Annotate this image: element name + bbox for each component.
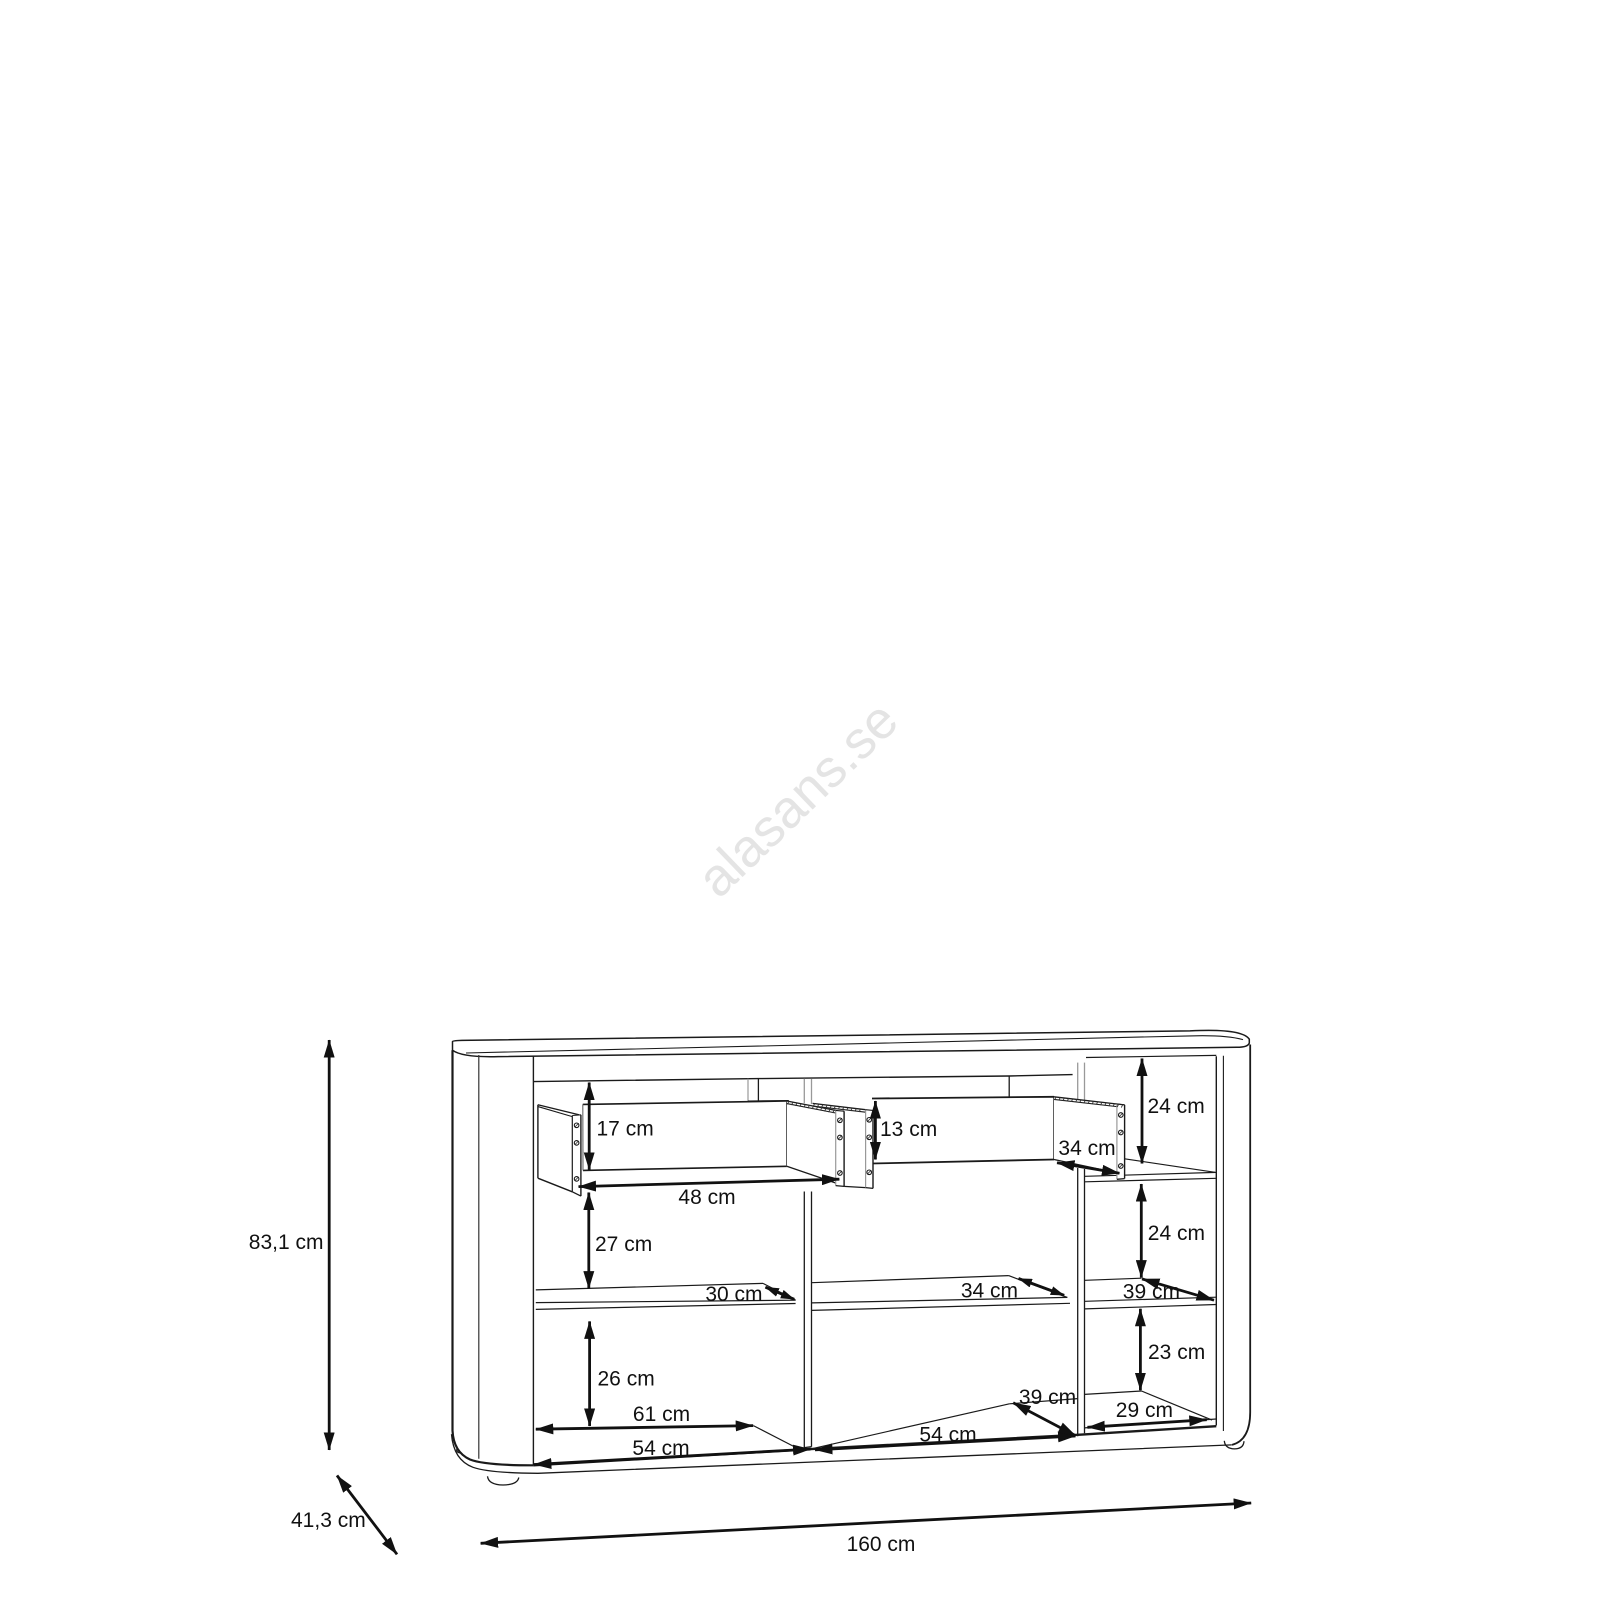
svg-text:24 cm: 24 cm [1148, 1095, 1205, 1118]
svg-text:39 cm: 39 cm [1019, 1386, 1076, 1409]
svg-text:41,3 cm: 41,3 cm [291, 1509, 366, 1532]
svg-text:17 cm: 17 cm [597, 1118, 654, 1141]
svg-text:29 cm: 29 cm [1116, 1399, 1173, 1422]
svg-text:26 cm: 26 cm [598, 1368, 655, 1391]
svg-text:34 cm: 34 cm [1058, 1137, 1115, 1160]
svg-text:27 cm: 27 cm [595, 1233, 652, 1256]
svg-text:54 cm: 54 cm [919, 1424, 976, 1447]
svg-text:alasans.se: alasans.se [686, 690, 909, 908]
svg-text:34 cm: 34 cm [961, 1280, 1018, 1303]
svg-text:54 cm: 54 cm [632, 1437, 689, 1460]
svg-text:30 cm: 30 cm [705, 1283, 762, 1306]
svg-text:24 cm: 24 cm [1148, 1222, 1205, 1245]
svg-text:48 cm: 48 cm [678, 1186, 735, 1209]
svg-text:39 cm: 39 cm [1123, 1281, 1180, 1304]
svg-text:160 cm: 160 cm [847, 1533, 916, 1556]
svg-text:61 cm: 61 cm [633, 1403, 690, 1426]
svg-text:83,1 cm: 83,1 cm [249, 1231, 324, 1254]
svg-text:23 cm: 23 cm [1148, 1341, 1205, 1364]
svg-text:13 cm: 13 cm [880, 1118, 937, 1141]
